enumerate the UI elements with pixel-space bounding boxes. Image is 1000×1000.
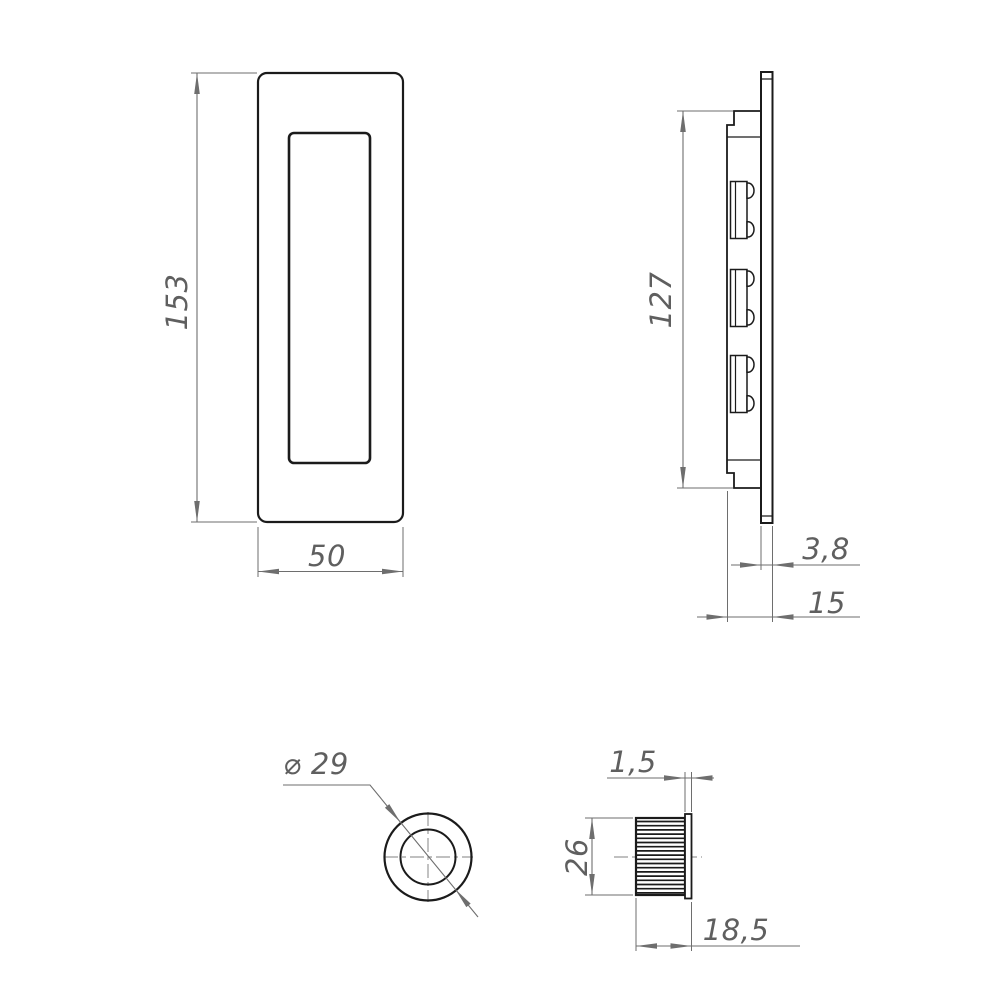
- arrow-icon: [382, 569, 403, 575]
- clip-body: [731, 356, 748, 413]
- side-face-plate: [761, 72, 773, 523]
- clip-tab: [747, 183, 754, 198]
- clip-tab: [747, 310, 754, 325]
- dim-height-label: 153: [160, 274, 194, 331]
- clip-tab: [747, 396, 754, 411]
- clip-tab: [747, 271, 754, 286]
- arrow-icon: [773, 562, 794, 568]
- arrow-icon: [671, 943, 692, 949]
- dim-plate-thickness-label: 3,8: [802, 532, 850, 566]
- arrow-icon: [636, 943, 657, 949]
- bush-collar: [685, 814, 692, 899]
- clip-body: [731, 270, 748, 327]
- knurled-bush-view: 1,5 26 18,5: [560, 745, 800, 951]
- dim-width-label: 50: [308, 539, 346, 573]
- arrow-icon: [680, 111, 686, 132]
- arrow-icon: [258, 569, 279, 575]
- arrow-icon: [773, 614, 794, 620]
- arrow-icon: [194, 73, 200, 94]
- extension-line: [191, 73, 257, 522]
- extension-line: [636, 898, 692, 951]
- diameter-dimension: ⌀ 29: [283, 747, 478, 917]
- dim-diameter-label: ⌀ 29: [283, 747, 349, 781]
- arrow-icon: [680, 467, 686, 488]
- front-width-dimension: 50: [258, 527, 403, 577]
- arrow-icon: [589, 818, 595, 839]
- clip-tab: [747, 357, 754, 372]
- front-view: 153 50: [160, 73, 403, 577]
- technical-drawing-canvas: 153 50: [0, 0, 1000, 1000]
- arrow-icon: [664, 775, 685, 781]
- side-height-dimension: 127: [644, 111, 733, 488]
- clip-tab: [747, 222, 754, 237]
- dim-bush-diameter-label: 26: [560, 838, 594, 876]
- front-height-dimension: 153: [160, 73, 257, 522]
- arrow-icon: [589, 874, 595, 895]
- arrow-icon: [194, 501, 200, 522]
- arrow-icon: [692, 775, 713, 781]
- bush-length-dimension: 18,5: [636, 898, 800, 951]
- extension-line: [677, 111, 733, 488]
- dim-collar-thickness-label: 1,5: [609, 745, 657, 779]
- total-depth-dimension: 15: [697, 586, 860, 620]
- arrow-icon: [740, 562, 761, 568]
- arrow-icon: [707, 614, 728, 620]
- side-view: 127 3,8 15: [644, 72, 860, 622]
- front-outer-contour: [258, 73, 403, 522]
- dim-total-depth-label: 15: [808, 586, 846, 620]
- clip-body: [731, 182, 748, 239]
- dim-body-height-label: 127: [644, 272, 678, 329]
- dim-bush-length-label: 18,5: [703, 913, 770, 947]
- collar-thickness-dimension: 1,5: [607, 745, 714, 812]
- circular-view: ⌀ 29: [283, 747, 478, 917]
- leader-line: [283, 785, 478, 917]
